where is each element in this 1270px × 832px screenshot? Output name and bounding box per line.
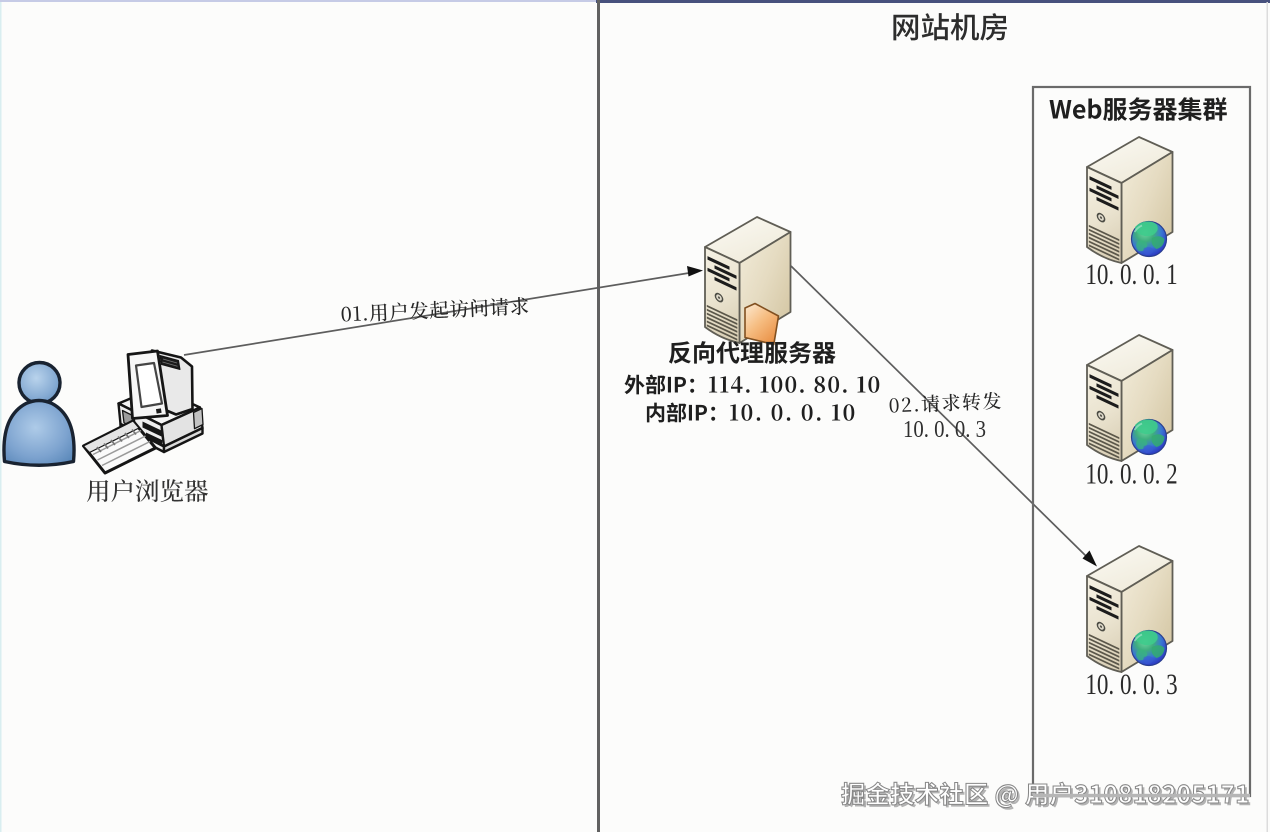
svg-text:10. 0. 0. 3: 10. 0. 0. 3 xyxy=(1085,667,1177,701)
svg-text:10. 0. 0. 2: 10. 0. 0. 2 xyxy=(1085,457,1177,491)
svg-text:10. 0. 0. 3: 10. 0. 0. 3 xyxy=(903,416,986,443)
svg-text:10. 0. 0. 1: 10. 0. 0. 1 xyxy=(1085,257,1177,291)
